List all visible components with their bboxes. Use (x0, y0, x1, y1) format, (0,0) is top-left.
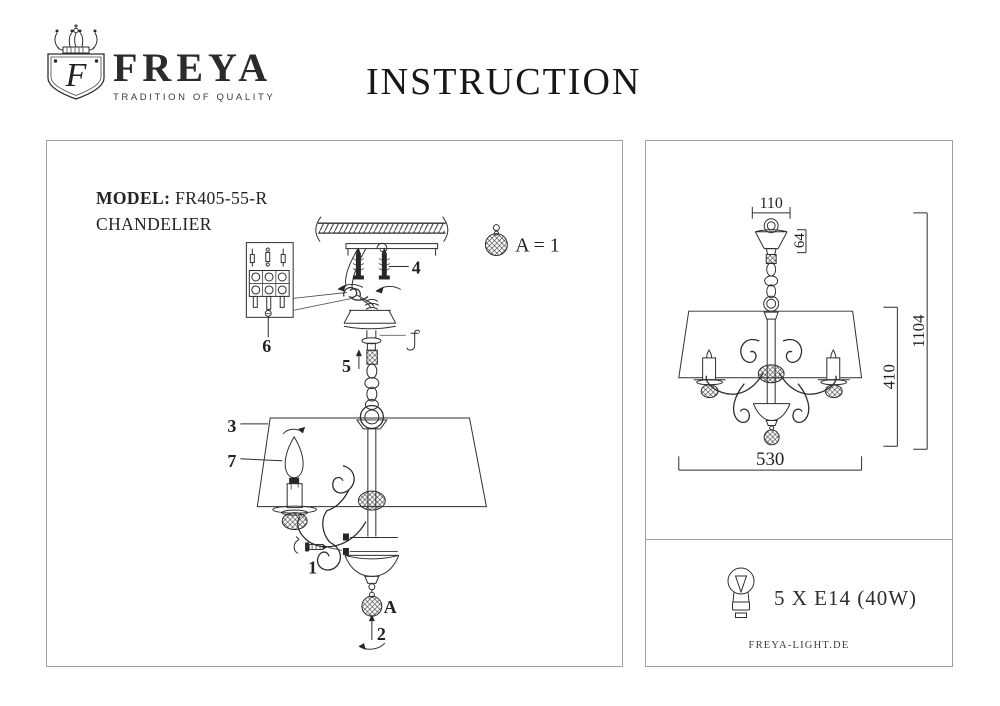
dimension-drawing: 110 64 (646, 141, 952, 539)
website: FREYA-LIGHT.DE (646, 640, 952, 651)
terminal-block-detail (246, 243, 352, 338)
dim-shade-width: 530 (679, 449, 862, 470)
part-label-4: 4 (412, 257, 421, 277)
crystal-note-text: A = 1 (515, 235, 559, 257)
part-label-6: 6 (262, 336, 271, 356)
finial-crystal (362, 589, 382, 616)
part-label-3: 3 (227, 416, 236, 436)
up-arrow-5 (356, 349, 362, 369)
monogram: F (65, 57, 88, 94)
chain (360, 350, 383, 428)
column-front (758, 319, 784, 403)
lamp-spec: 5 X E14 (40W) (774, 586, 917, 611)
finial-front (764, 430, 779, 445)
shield-icon: F (48, 54, 104, 99)
dimensions-panel: 110 64 (645, 140, 953, 540)
scroll-arms (298, 466, 366, 570)
dim-total-height: 1104 (909, 213, 928, 449)
part-label-2: 2 (377, 624, 386, 644)
crystal-note: A = 1 (485, 225, 559, 257)
part-label-a: A (384, 597, 397, 617)
page-title: INSTRUCTION (366, 60, 641, 104)
canopy (344, 310, 396, 350)
specs-panel: 5 X E14 (40W) FREYA-LIGHT.DE (645, 540, 953, 667)
assembly-diagram: 5 3 7 (47, 141, 622, 666)
dim-canopy-height: 64 (792, 230, 808, 253)
candle-front-left (694, 350, 726, 398)
bowl-front (753, 404, 790, 430)
candle-front-right (818, 350, 850, 398)
mounting-screws (353, 248, 409, 280)
dim-canopy-width: 110 (752, 195, 790, 219)
part-label-1: 1 (308, 557, 317, 577)
bulb-icon (722, 566, 760, 632)
brand-name: FREYA (113, 48, 275, 88)
svg-text:1104: 1104 (909, 314, 928, 348)
brand-block: FREYA TRADITION OF QUALITY (113, 48, 275, 103)
canopy-front (755, 219, 787, 255)
crown-icon (55, 24, 97, 53)
svg-text:410: 410 (879, 364, 898, 389)
hook-icon (380, 330, 420, 350)
svg-text:110: 110 (760, 195, 783, 212)
freya-logo: F (44, 22, 108, 104)
part-label-5: 5 (342, 356, 351, 376)
dim-body-height: 410 (879, 307, 898, 446)
brand-tagline: TRADITION OF QUALITY (113, 92, 275, 103)
svg-text:64: 64 (792, 233, 808, 248)
svg-text:530: 530 (756, 449, 784, 470)
bottom-bowl (345, 555, 399, 589)
part-label-7: 7 (227, 451, 236, 471)
center-column (343, 429, 398, 555)
assembly-panel: MODEL: FR405-55-R CHANDELIER (46, 140, 623, 667)
chain-front (764, 255, 779, 320)
ceiling (316, 217, 448, 242)
instruction-sheet: F FREYA TRADITION OF QUALITY INSTRUCTION… (0, 0, 1000, 706)
candle (273, 427, 317, 530)
